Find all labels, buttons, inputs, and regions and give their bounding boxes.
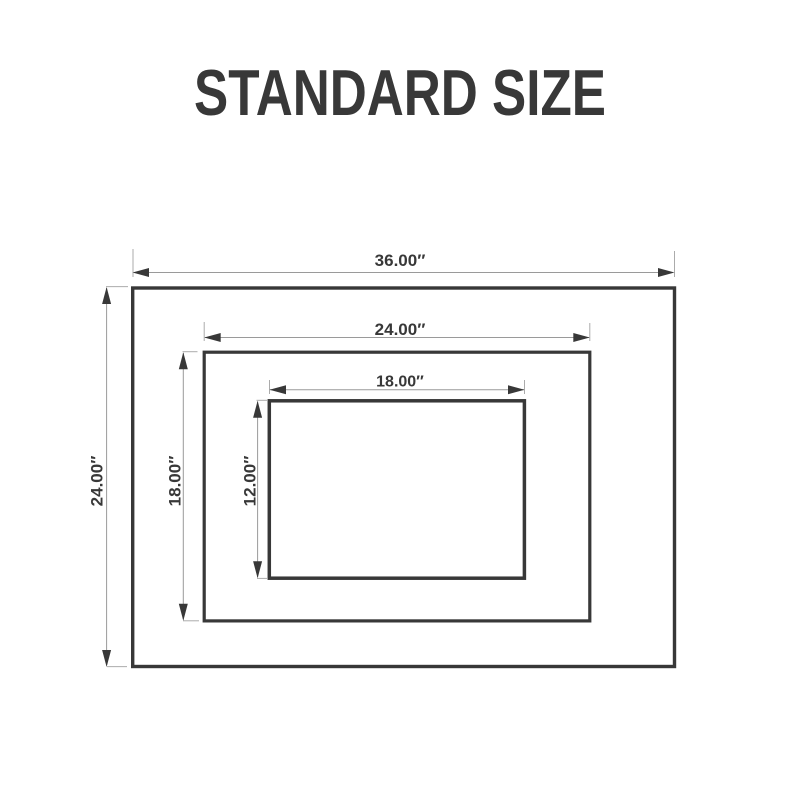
svg-text:12.00″: 12.00″ <box>240 456 259 507</box>
svg-text:24.00″: 24.00″ <box>88 456 107 507</box>
svg-text:36.00″: 36.00″ <box>375 251 426 270</box>
svg-text:18.00″: 18.00″ <box>376 374 424 391</box>
svg-text:18.00″: 18.00″ <box>165 456 184 507</box>
svg-text:24.00″: 24.00″ <box>375 320 426 339</box>
svg-text:STANDARD SIZE: STANDARD SIZE <box>194 56 606 129</box>
